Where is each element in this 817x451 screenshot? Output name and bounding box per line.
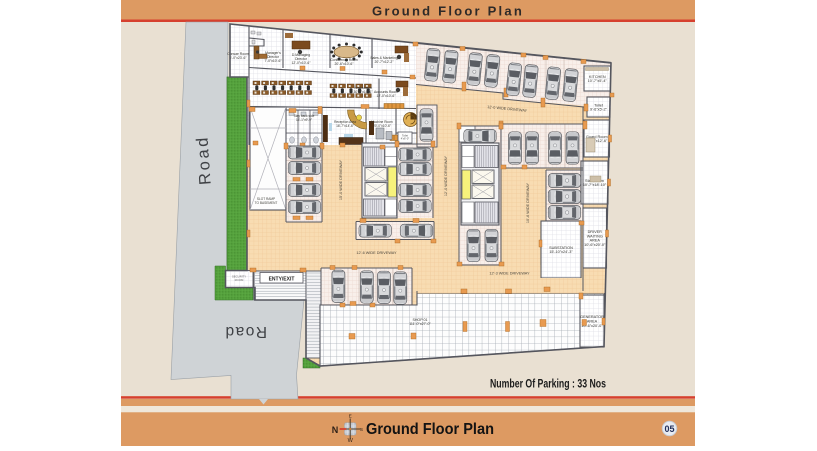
svg-text:10'-6 WIDE DRIVEWAY: 10'-6 WIDE DRIVEWAY <box>526 182 530 223</box>
svg-text:ENTY/EXIT: ENTY/EXIT <box>269 277 295 283</box>
svg-text:W: W <box>348 438 354 444</box>
svg-text:Toilet4'x6'-0": Toilet4'x6'-0" <box>401 134 409 141</box>
svg-text:SUBSTATION15'-10"x24'-3": SUBSTATION15'-10"x24'-3" <box>549 246 573 254</box>
svg-text:12'-0 WIDE DRIVEWAY: 12'-0 WIDE DRIVEWAY <box>444 155 448 196</box>
svg-text:Reception Area16'-7"x14'-6": Reception Area16'-7"x14'-6" <box>334 120 356 128</box>
svg-text:KITCHEN10'-7"x5'-4": KITCHEN10'-7"x5'-4" <box>588 75 608 83</box>
svg-text:Road: Road <box>193 135 214 186</box>
svg-text:Workstation30'-0"x10'-6": Workstation30'-0"x10'-6" <box>354 86 374 94</box>
svg-text:Ground Floor Plan: Ground Floor Plan <box>372 4 524 19</box>
svg-text:12'-3 WIDE DRIVEWAY: 12'-3 WIDE DRIVEWAY <box>489 272 530 276</box>
svg-text:SLOT RAMPTO BASEMENT: SLOT RAMPTO BASEMENT <box>255 197 278 205</box>
svg-text:Stay back side14'-1"x9'-9": Stay back side14'-1"x9'-9" <box>294 114 315 122</box>
svg-text:Accounts Room12'-0"x10'-6": Accounts Room12'-0"x10'-6" <box>374 90 398 98</box>
svg-text:Number Of Parking : 33 Nos: Number Of Parking : 33 Nos <box>490 377 606 391</box>
svg-text:12'-6 WIDE DRIVEWAY: 12'-6 WIDE DRIVEWAY <box>356 251 397 255</box>
svg-text:Machine Room20'-0"x10'-6": Machine Room20'-0"x10'-6" <box>371 120 393 128</box>
svg-text:Ground Floor Plan: Ground Floor Plan <box>366 421 494 438</box>
svg-text:Road: Road <box>224 323 267 340</box>
svg-text:S: S <box>360 427 363 432</box>
svg-text:N: N <box>332 425 339 435</box>
svg-text:E: E <box>349 414 352 419</box>
svg-text:05: 05 <box>664 424 674 434</box>
svg-text:15'-0 WIDE DRIVEWAY: 15'-0 WIDE DRIVEWAY <box>339 159 343 200</box>
